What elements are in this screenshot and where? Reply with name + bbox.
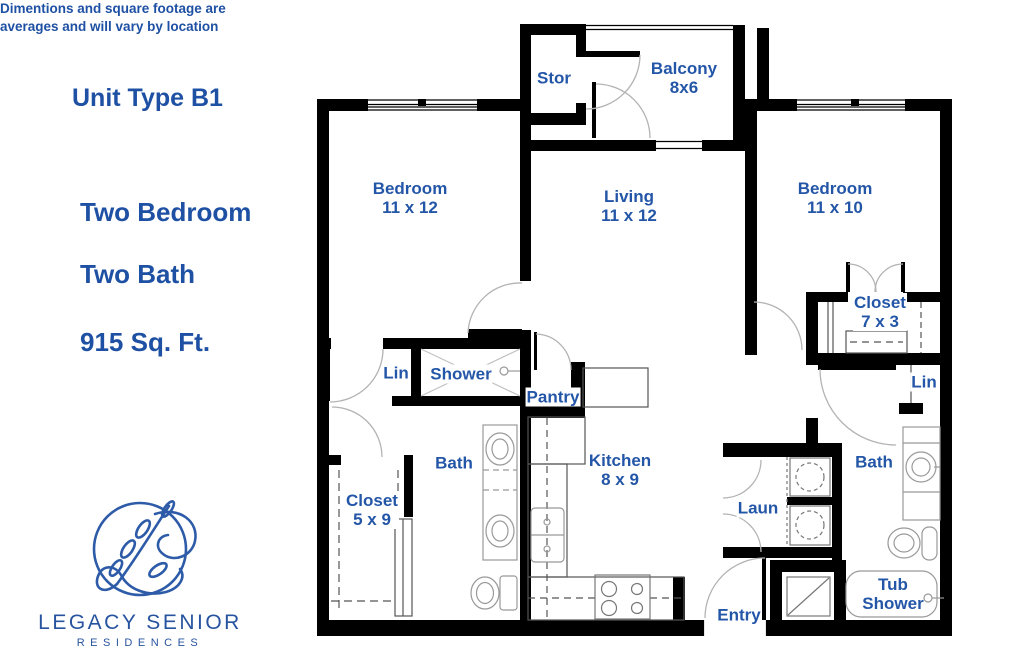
- wall-segment: [899, 403, 923, 414]
- sink: [906, 452, 936, 482]
- logo-leaf: [119, 538, 138, 560]
- door-leaf: [586, 51, 640, 57]
- mechanical-closet: [787, 577, 830, 616]
- bath2-vanity: [903, 427, 940, 520]
- door-leaf: [752, 300, 756, 347]
- door-leaf: [468, 329, 522, 338]
- wall-segment: [903, 292, 940, 302]
- door-leaf: [592, 82, 596, 138]
- room-label-kitchen: Kitchen8 x 9: [588, 451, 652, 489]
- wall-segment: [520, 418, 531, 620]
- toilet-fixture: [888, 527, 937, 560]
- sink: [492, 521, 508, 541]
- wall-segment: [770, 560, 782, 620]
- wall-segment: [733, 99, 797, 111]
- config-line2: Two Bath: [80, 259, 195, 289]
- wall-segment: [757, 28, 769, 99]
- unit-area: 915 Sq. Ft.: [80, 327, 210, 358]
- door-arc: [848, 264, 876, 292]
- wall-segment: [520, 24, 531, 104]
- room-label-closet2: Closet7 x 3: [853, 293, 907, 331]
- wall-segment: [940, 99, 952, 636]
- room-label-laundry: Laun: [737, 499, 780, 518]
- door-leaf: [534, 332, 537, 370]
- room-label-shower: Shower: [429, 365, 492, 384]
- toilet-fixture: [471, 576, 517, 610]
- room-label-entry: Entry: [716, 606, 761, 625]
- door-arc: [596, 84, 650, 138]
- door-leaves: [326, 51, 905, 620]
- room-label-bedroom2: Bedroom11 x 10: [797, 179, 874, 217]
- door-leaf: [901, 262, 905, 292]
- brand-name: LEGACY SENIOR: [0, 611, 280, 635]
- room-label-pantry: Pantry: [526, 388, 581, 407]
- door-leaf: [846, 262, 850, 292]
- door-arc: [723, 460, 761, 498]
- room-label-living: Living11 x 12: [600, 187, 658, 225]
- wall-segment: [723, 547, 842, 558]
- wall-segment: [392, 396, 520, 406]
- sink: [486, 515, 514, 547]
- wall-segment: [702, 140, 745, 151]
- window-mullion: [851, 99, 859, 106]
- legacy-senior-logo: [94, 500, 196, 595]
- door-arc: [330, 349, 383, 402]
- wall-segment: [520, 99, 531, 281]
- config-line1: Two Bedroom: [80, 197, 251, 227]
- room-label-bath1: Bath: [434, 454, 474, 473]
- room-label-bath2: Bath: [854, 453, 894, 472]
- wall-segment: [832, 443, 842, 560]
- room-label-closet1: Closet5 x 9: [345, 491, 399, 529]
- wall-segment: [806, 353, 940, 365]
- shower-head: [500, 367, 508, 375]
- wall-segment: [317, 338, 331, 349]
- stove-fixture: [595, 575, 650, 619]
- door-arc: [820, 369, 896, 445]
- wall-segment: [767, 620, 952, 636]
- brand-subtitle: RESIDENCES: [0, 637, 280, 649]
- room-label-stor: Stor: [536, 69, 572, 88]
- wall-segment: [317, 99, 368, 111]
- wall-segment: [723, 443, 842, 457]
- floorplan-page: Unit Type B1 Two Bedroom Two Bath 915 Sq…: [0, 0, 1011, 651]
- wall-segment: [383, 338, 531, 349]
- door-arc: [723, 514, 761, 552]
- wall-segment: [834, 560, 846, 620]
- wall-segment: [520, 113, 586, 125]
- wall-segment: [520, 140, 656, 151]
- wall-segment: [787, 497, 832, 505]
- wall-segment: [404, 455, 413, 517]
- sink: [486, 433, 514, 465]
- bath1-vanity: [483, 425, 517, 560]
- wall-segment: [576, 33, 586, 57]
- door-arc: [754, 302, 802, 350]
- door-leaf: [762, 556, 766, 620]
- window-mullion: [418, 99, 426, 106]
- wall-segment: [806, 418, 818, 447]
- room-label-lin2: Lin: [910, 373, 938, 392]
- door-arc: [536, 334, 571, 370]
- wall-segment: [317, 620, 703, 636]
- door-arc: [875, 264, 903, 292]
- unit-config: Two Bedroom Two Bath: [80, 197, 251, 290]
- room-label-lin1: Lin: [382, 364, 410, 383]
- wall-segment: [733, 25, 745, 151]
- wall-segment: [317, 455, 341, 465]
- door-arc: [332, 407, 382, 457]
- room-label-bedroom1: Bedroom11 x 12: [372, 179, 449, 217]
- door-arc: [468, 283, 522, 333]
- door-leaf: [326, 349, 330, 401]
- room-label-balcony: Balcony8x6: [650, 59, 718, 97]
- sink: [492, 439, 508, 459]
- door-leaf: [818, 365, 896, 370]
- logo-leaf: [147, 561, 169, 580]
- room-label-tub-shower: TubShower: [861, 575, 924, 613]
- sink: [912, 458, 930, 476]
- page-title: Unit Type B1: [72, 84, 223, 113]
